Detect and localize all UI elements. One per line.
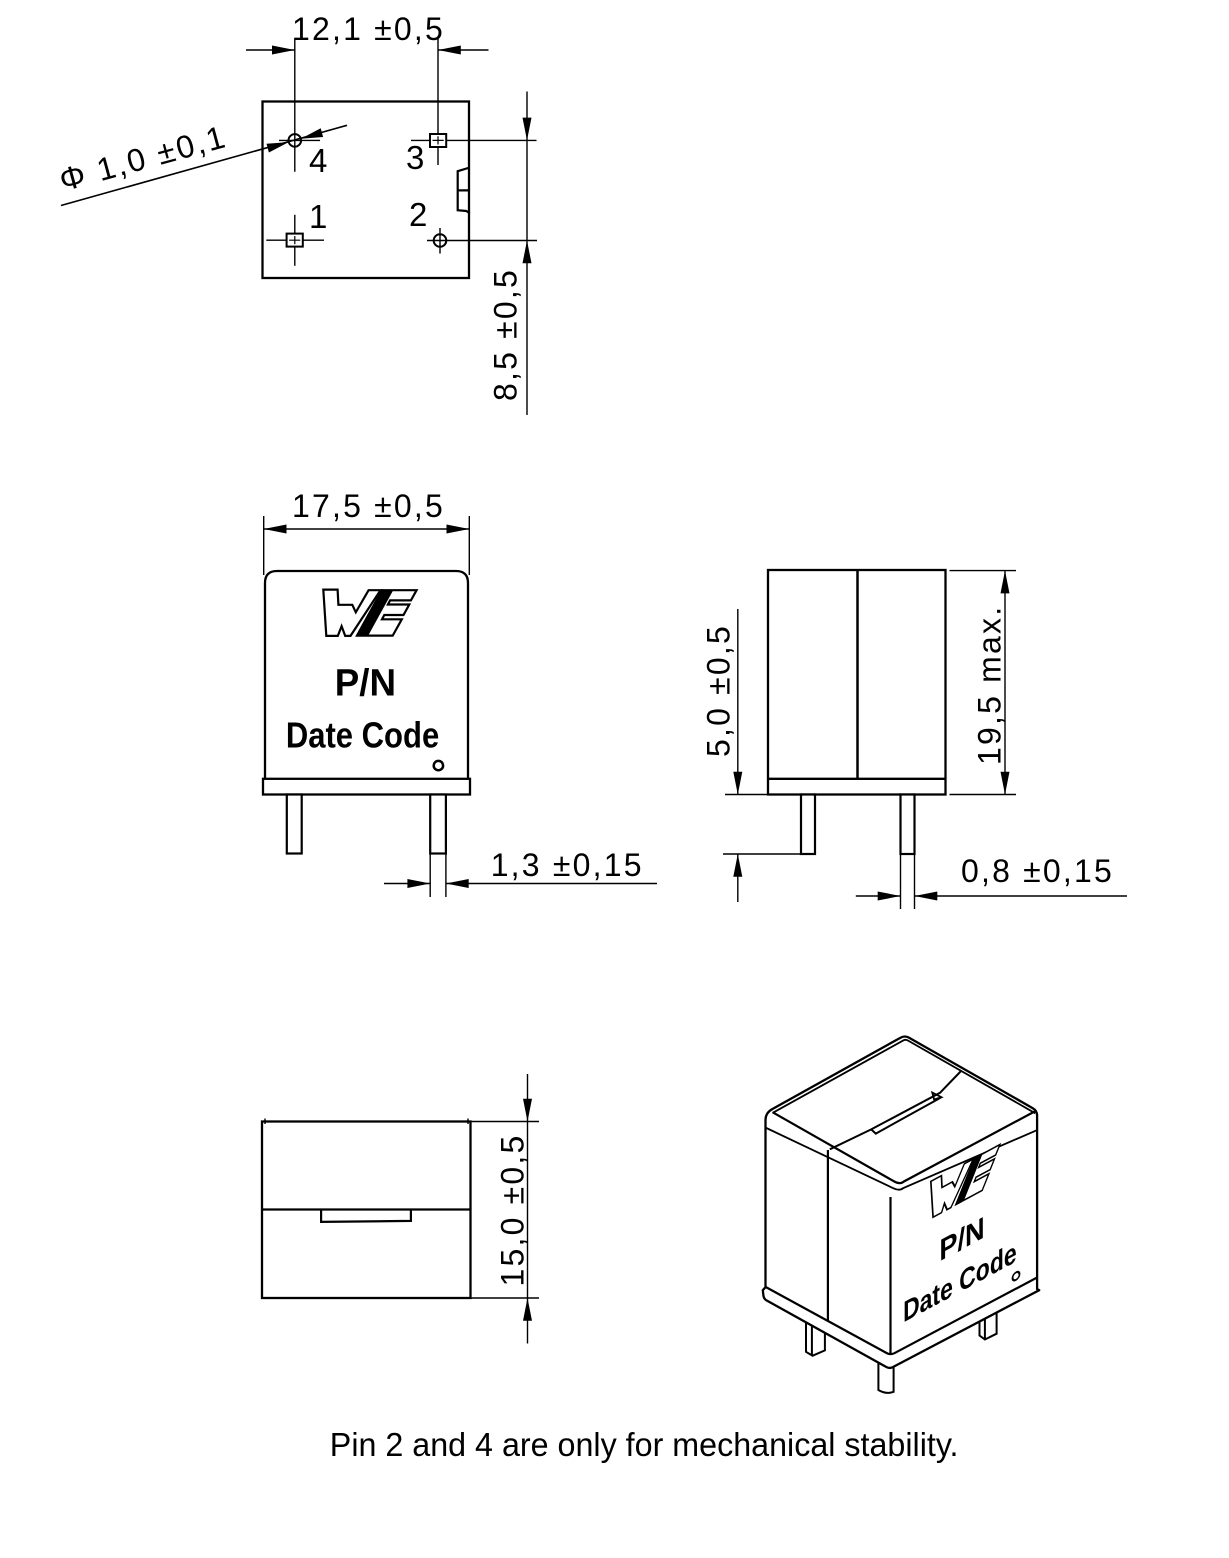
svg-text:12,1 ±0,5: 12,1 ±0,5 xyxy=(292,11,445,47)
svg-text:Φ 1,0 ±0,1: Φ 1,0 ±0,1 xyxy=(55,118,230,198)
svg-text:19,5 max.: 19,5 max. xyxy=(972,605,1008,765)
svg-text:Pin 2 and 4 are only for mecha: Pin 2 and 4 are only for mechanical stab… xyxy=(330,1425,959,1463)
svg-text:1,3 ±0,15: 1,3 ±0,15 xyxy=(491,847,644,883)
svg-text:1: 1 xyxy=(309,198,327,235)
svg-text:17,5 ±0,5: 17,5 ±0,5 xyxy=(292,488,445,524)
svg-text:2: 2 xyxy=(409,196,427,233)
svg-text:8,5 ±0,5: 8,5 ±0,5 xyxy=(488,268,524,401)
svg-text:0,8 ±0,15: 0,8 ±0,15 xyxy=(961,853,1114,889)
svg-text:15,0 ±0,5: 15,0 ±0,5 xyxy=(495,1133,531,1286)
svg-text:4: 4 xyxy=(309,142,327,179)
svg-text:5,0 ±0,5: 5,0 ±0,5 xyxy=(701,624,737,757)
svg-text:3: 3 xyxy=(406,139,424,176)
